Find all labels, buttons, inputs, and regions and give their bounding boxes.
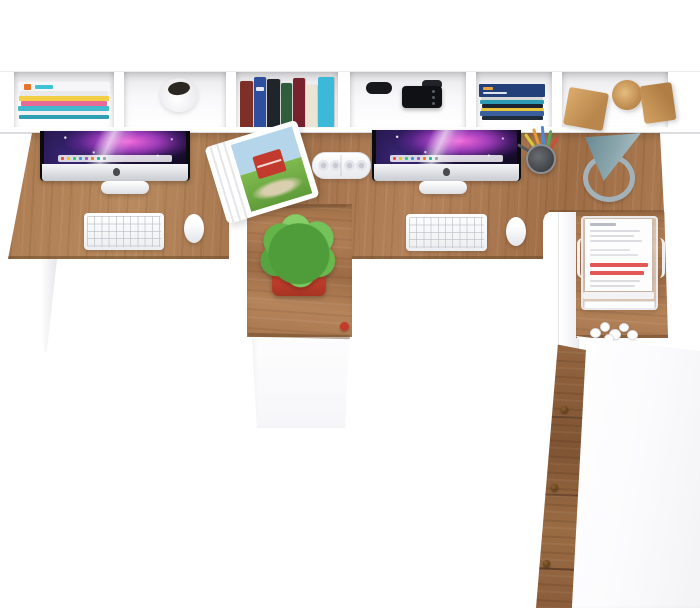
magazine-spine (18, 82, 110, 91)
tray-wire-handle (655, 238, 665, 278)
tray-documents (585, 219, 652, 291)
shelf-compartment-camera (350, 72, 466, 127)
left-imac (40, 131, 190, 181)
drawer-knob (543, 560, 550, 567)
shelf-compartment-magazines (14, 72, 114, 127)
magazine-logo (24, 84, 31, 90)
book-spine (254, 77, 266, 127)
right-keyboard (406, 214, 487, 251)
book-spine (240, 81, 253, 127)
right-keyboard-keys (409, 217, 484, 248)
wall-shelf (0, 0, 700, 134)
pill-speaker (312, 152, 371, 179)
potted-plant (250, 212, 348, 300)
magazine-spine (19, 115, 109, 119)
paper-tray (581, 216, 658, 310)
desk-lamp (573, 131, 643, 195)
workstation-render (0, 0, 700, 608)
peninsula-knob (340, 322, 349, 331)
shelf-top-face (0, 0, 700, 72)
left-imac-chin (42, 164, 188, 181)
camera-body (402, 86, 442, 108)
desk-cup (160, 78, 198, 112)
book-spine (267, 79, 280, 127)
cup-opening (167, 81, 191, 97)
right-imac-chin (374, 164, 519, 181)
wood-cube (563, 87, 609, 131)
speaker-seam (340, 155, 342, 176)
shelf-compartment-wood-decor (562, 72, 668, 127)
shelf-compartment-flat-books (476, 72, 552, 127)
desk-front-edge (352, 256, 543, 259)
plant-foliage (258, 212, 340, 288)
shelf-compartment-books (236, 72, 338, 127)
shelf-compartment-cup (124, 72, 226, 127)
left-mouse (184, 214, 204, 243)
book-spine (306, 85, 317, 127)
wood-cube (640, 82, 677, 124)
apple-logo-icon (443, 168, 450, 176)
book-spine (318, 77, 334, 127)
desk-leg (30, 259, 57, 352)
left-imac-stand (101, 181, 149, 194)
right-imac-dock (390, 155, 503, 162)
right-imac (372, 130, 521, 181)
highlight-line (590, 263, 648, 267)
right-imac-screen (376, 130, 517, 164)
tray-lower-sheets (583, 292, 654, 299)
tray-lower-sheets (584, 301, 655, 309)
right-mouse (506, 217, 526, 246)
book-spine (293, 78, 305, 127)
tray-wire-handle (577, 238, 587, 278)
apple-logo-icon (113, 168, 120, 176)
camera-accessory (366, 82, 392, 94)
right-imac-stand (419, 181, 467, 194)
wood-cylinder (612, 80, 642, 110)
highlight-line (590, 271, 644, 275)
cup-body (526, 144, 556, 174)
pencil-cup (518, 124, 560, 174)
magazine-title-mark (35, 85, 53, 89)
book-cover (479, 84, 545, 97)
left-imac-dock (58, 155, 172, 162)
left-keyboard (84, 213, 164, 250)
book-layer (482, 116, 543, 120)
left-keyboard-keys (87, 216, 161, 247)
drawer-knob (551, 484, 558, 491)
magazine-stack (18, 82, 110, 120)
desk-front-edge (8, 256, 229, 259)
drawer-knob (561, 406, 568, 413)
left-imac-screen (44, 131, 186, 164)
peninsula-cabinet (252, 338, 349, 428)
